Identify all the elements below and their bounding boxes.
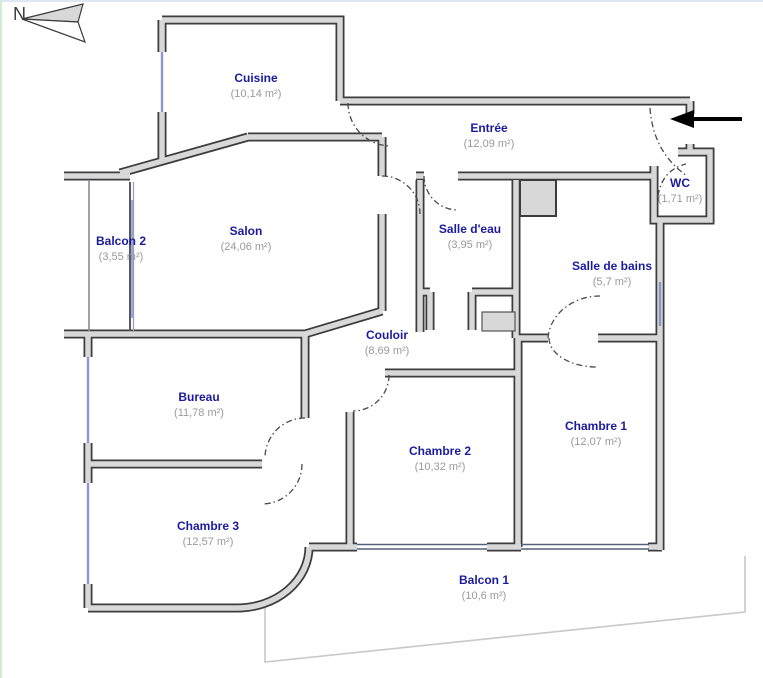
entrance-arrow-icon [670, 110, 742, 128]
floor-plan-drawing [0, 0, 763, 678]
floor-plan: N Cuisine (10,14 m²) Entrée (12,09 m²) W… [0, 0, 763, 678]
balcony1-outline [265, 556, 745, 662]
salon-window-wall [130, 182, 134, 331]
north-arrow-icon [22, 4, 85, 42]
shaft-box [520, 180, 556, 216]
duct-box [482, 312, 515, 331]
compass-label: N [13, 4, 26, 25]
